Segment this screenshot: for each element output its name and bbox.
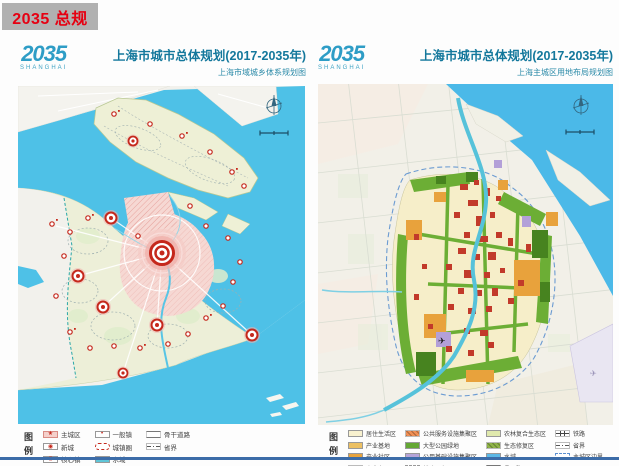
legend-item: ◉新城 <box>43 442 81 452</box>
legend-swatch <box>405 430 420 437</box>
legend-label: 骨干道路 <box>164 429 190 439</box>
legend-label: 省界 <box>573 441 585 450</box>
legend-label: 生态修复区 <box>504 441 534 450</box>
legend-symbol: • <box>101 431 103 437</box>
legend-column: ★主城区◉新城◎核心镇⊙中心镇 <box>43 429 81 466</box>
panel-title: 上海市城市总体规划(2017-2035年) <box>113 45 306 64</box>
airplane-icon: ✈ <box>438 336 446 346</box>
legend-swatch: ◉ <box>43 443 58 450</box>
panel-subtitle: 上海市域城乡体系规划图 <box>218 67 306 78</box>
logo-year: 2035 <box>21 44 66 64</box>
legend-landuse: 图例 居住生活区产业基地产业社区商业办公区公共服务设施集聚区大型公园绿地公用基础… <box>329 429 603 466</box>
shanghai-2035-logo: 2035 SHANGHAI <box>318 44 365 71</box>
legend-column: 铁路省界主城区边界 <box>555 429 603 466</box>
legend-item: 公共服务设施集聚区 <box>405 429 477 438</box>
legend-swatch <box>486 430 501 437</box>
legend-columns: ★主城区◉新城◎核心镇⊙中心镇•一般镇城镇圈水域铁路骨干道路省界 <box>43 429 190 466</box>
legend-label: 公共服务设施集聚区 <box>423 429 477 438</box>
legend-column: 公共服务设施集聚区大型公园绿地公用基础设施集聚区战略预留区 <box>405 429 477 466</box>
legend-item: 农林复合生态区 <box>486 429 546 438</box>
legend-swatch <box>405 442 420 449</box>
legend-urban-system: 图例 ★主城区◉新城◎核心镇⊙中心镇•一般镇城镇圈水域铁路骨干道路省界 <box>24 429 190 466</box>
legend-column: 农林复合生态区生态修复区水域骨干路网 <box>486 429 546 466</box>
shanghai-2035-logo: 2035 SHANGHAI <box>20 44 67 71</box>
page-banner: 2035 总规 <box>2 3 98 30</box>
logo-year: 2035 <box>319 44 364 64</box>
legend-label: 大型公园绿地 <box>423 441 459 450</box>
legend-item: 骨干道路 <box>146 429 190 439</box>
legend-label: 新城 <box>61 442 74 452</box>
legend-swatch <box>486 442 501 449</box>
legend-swatch: • <box>95 431 110 438</box>
legend-columns: 居住生活区产业基地产业社区商业办公区公共服务设施集聚区大型公园绿地公用基础设施集… <box>348 429 603 466</box>
legend-item: 省界 <box>555 441 603 450</box>
legend-item: 生态修复区 <box>486 441 546 450</box>
legend-item: 产业基地 <box>348 441 396 450</box>
legend-item: 居住生活区 <box>348 429 396 438</box>
legend-label: 城镇圈 <box>113 442 133 452</box>
banner-title: 2035 总规 <box>12 5 88 29</box>
panel-subtitle: 上海主城区用地布局规划图 <box>517 67 613 78</box>
legend-label: 居住生活区 <box>366 429 396 438</box>
legend-swatch <box>95 443 110 450</box>
legend-column: •一般镇城镇圈水域铁路 <box>95 429 133 466</box>
legend-swatch <box>348 442 363 449</box>
legend-title: 图例 <box>329 430 340 458</box>
legend-item: 大型公园绿地 <box>405 441 477 450</box>
legend-item: ★主城区 <box>43 429 81 439</box>
legend-item: •一般镇 <box>95 429 133 439</box>
legend-item: 省界 <box>146 442 190 452</box>
legend-swatch: ★ <box>43 431 58 438</box>
legend-label: 农林复合生态区 <box>504 429 546 438</box>
map-landuse: ✈ <box>318 84 613 425</box>
legend-swatch <box>348 430 363 437</box>
legend-column: 骨干道路省界 <box>146 429 190 466</box>
airplane-icon: ✈ <box>590 369 597 378</box>
map-urban-system <box>18 86 305 424</box>
legend-column: 居住生活区产业基地产业社区商业办公区 <box>348 429 396 466</box>
panel-header-urban-system: 2035 SHANGHAI 上海市城市总体规划(2017-2035年) 上海市域… <box>20 42 306 84</box>
legend-swatch <box>146 443 161 450</box>
logo-city: SHANGHAI <box>20 65 67 71</box>
legend-swatch <box>555 430 570 437</box>
legend-item: 城镇圈 <box>95 442 133 452</box>
page: 2035 总规 2035 SHANGHAI 上海市城市总体规划(2017-203… <box>0 0 619 466</box>
legend-symbol: ★ <box>48 431 53 437</box>
legend-swatch <box>555 442 570 449</box>
logo-city: SHANGHAI <box>318 65 365 71</box>
legend-symbol: ◉ <box>48 444 53 450</box>
footer-divider <box>0 457 619 460</box>
legend-title: 图例 <box>24 430 35 458</box>
legend-item: 铁路 <box>555 429 603 438</box>
panel-title: 上海市城市总体规划(2017-2035年) <box>420 45 613 64</box>
panel-header-landuse: 2035 SHANGHAI 上海市城市总体规划(2017-2035年) 上海主城… <box>318 42 613 84</box>
legend-label: 省界 <box>164 442 177 452</box>
legend-swatch <box>146 431 161 438</box>
legend-label: 一般镇 <box>113 429 133 439</box>
legend-label: 铁路 <box>573 429 585 438</box>
legend-label: 产业基地 <box>366 441 390 450</box>
city-center-bullseye <box>138 229 186 277</box>
legend-label: 主城区 <box>61 429 81 439</box>
